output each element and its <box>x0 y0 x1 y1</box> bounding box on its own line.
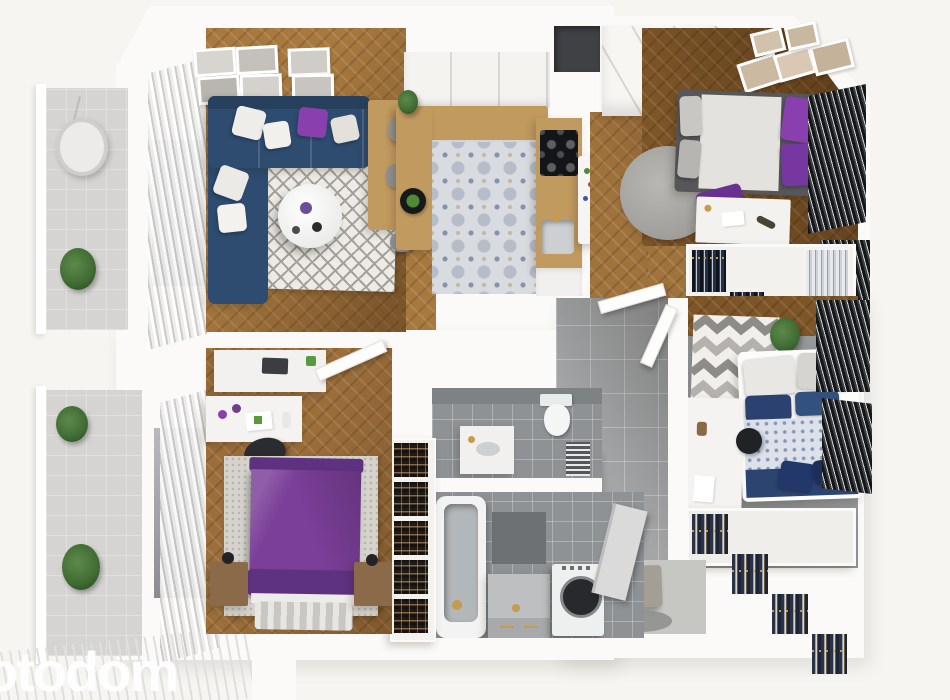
wine-rack-shelf <box>394 521 428 555</box>
kitchen-sink <box>541 220 574 254</box>
balcony-top-rail <box>36 84 46 334</box>
cooktop <box>540 130 578 176</box>
sofa-pillow-beige <box>330 114 361 145</box>
table-decor-bowl <box>312 222 322 232</box>
bed1-duvet <box>698 94 781 191</box>
closet-section-folded <box>732 554 768 594</box>
desk-papers <box>721 211 744 227</box>
kitchen-herbs <box>398 90 418 114</box>
desk-lamp-gold <box>704 205 711 212</box>
bedroom2-stool <box>736 428 762 454</box>
hanging-chair <box>56 118 108 176</box>
wall-bathroom-bottom <box>432 638 644 658</box>
sofa-pillow-white-4 <box>217 203 248 234</box>
window-blinds-dark <box>808 84 866 234</box>
wall-art-frame <box>193 47 237 78</box>
watermark-logo: otodom <box>0 644 177 700</box>
purple-cup <box>232 404 241 413</box>
table-decor-cup <box>292 226 300 234</box>
washer-controls <box>562 566 592 570</box>
vanity-handle <box>524 626 538 628</box>
nightstand-left <box>210 562 248 606</box>
wall-art-frame <box>288 47 331 76</box>
closet-section-folded <box>772 594 808 634</box>
bedroom2-plant <box>770 318 800 352</box>
vanity-faucet <box>512 604 520 612</box>
laptop <box>262 358 289 375</box>
nightstand-right <box>354 562 392 606</box>
white-bottle <box>282 412 291 428</box>
vanity-front <box>488 618 550 640</box>
balcony-plant-3 <box>62 544 100 590</box>
coffee-table <box>278 184 342 248</box>
wine-rack-shelf <box>394 482 428 516</box>
window-blinds-dark <box>822 398 872 494</box>
closet-section-hanging <box>692 250 726 292</box>
bed3-gray-throw <box>255 601 353 631</box>
bedroom3-bed <box>247 457 364 631</box>
balcony-plant <box>60 248 96 290</box>
nightstand-lamp <box>366 554 378 566</box>
nightstand-lamp <box>222 552 234 564</box>
bed1-pillow-gray-2 <box>677 139 702 179</box>
bathroom-vanity <box>488 574 550 640</box>
wine-rack-shelf <box>394 560 428 594</box>
wall-left-upper <box>128 56 150 352</box>
bedroom3-dresser <box>214 350 326 392</box>
towel-radiator <box>566 442 590 476</box>
bed2-deco-pillow <box>778 460 816 492</box>
kitchen-tile-floor <box>432 142 548 294</box>
wine-rack-shelf <box>394 443 428 477</box>
green-note <box>254 416 262 424</box>
bathroom-accent-tile <box>492 512 546 564</box>
wine-rack <box>390 438 436 642</box>
bed3-duvet <box>249 469 361 575</box>
wardrobe-folded-rack <box>686 508 856 566</box>
balcony-bottom-rail <box>36 386 46 664</box>
wc-basin <box>476 442 500 456</box>
wc-faucet <box>468 436 475 443</box>
bed1-pillow-gray <box>679 96 702 137</box>
closet-section-folded <box>812 634 847 674</box>
fruit-bowl <box>400 188 426 214</box>
balcony-plant-2 <box>56 406 88 442</box>
table-decor-plant <box>300 202 312 214</box>
vanity-handle <box>500 626 514 628</box>
floorplan-3d-render: otodom <box>0 0 950 700</box>
sofa-backrest <box>208 96 370 109</box>
bedroom1-bed <box>674 90 819 197</box>
wc-vanity <box>460 426 514 474</box>
lizard-figurine <box>755 215 776 230</box>
closet-section-folded <box>692 514 728 554</box>
entry-door-niche <box>554 26 600 72</box>
sofa-pillow-purple <box>297 107 329 139</box>
deer-figurine <box>697 422 707 436</box>
desk-papers <box>693 475 715 503</box>
bed2-pillow-white <box>742 354 798 397</box>
sink-faucet <box>552 214 560 222</box>
wc-wall-band <box>432 388 602 404</box>
bathtub-faucet <box>452 600 462 610</box>
fridge-magnet <box>583 196 588 201</box>
kitchen-lower-cabinet <box>536 268 582 296</box>
wine-rack-shelf <box>394 599 428 633</box>
bedroom1-desk <box>695 196 791 245</box>
purple-cup <box>218 410 227 419</box>
wall-art-frame <box>235 45 278 75</box>
wall-corridor-right <box>668 298 688 568</box>
sofa-pillow-white-2 <box>262 120 292 150</box>
bedroom3-desk <box>206 396 302 442</box>
window-blinds-dark <box>816 300 870 392</box>
green-decor <box>306 356 316 366</box>
kitchen-upper-cabinets <box>404 52 550 108</box>
kitchen-counter-leg <box>396 106 432 250</box>
toilet-bowl <box>544 404 570 436</box>
